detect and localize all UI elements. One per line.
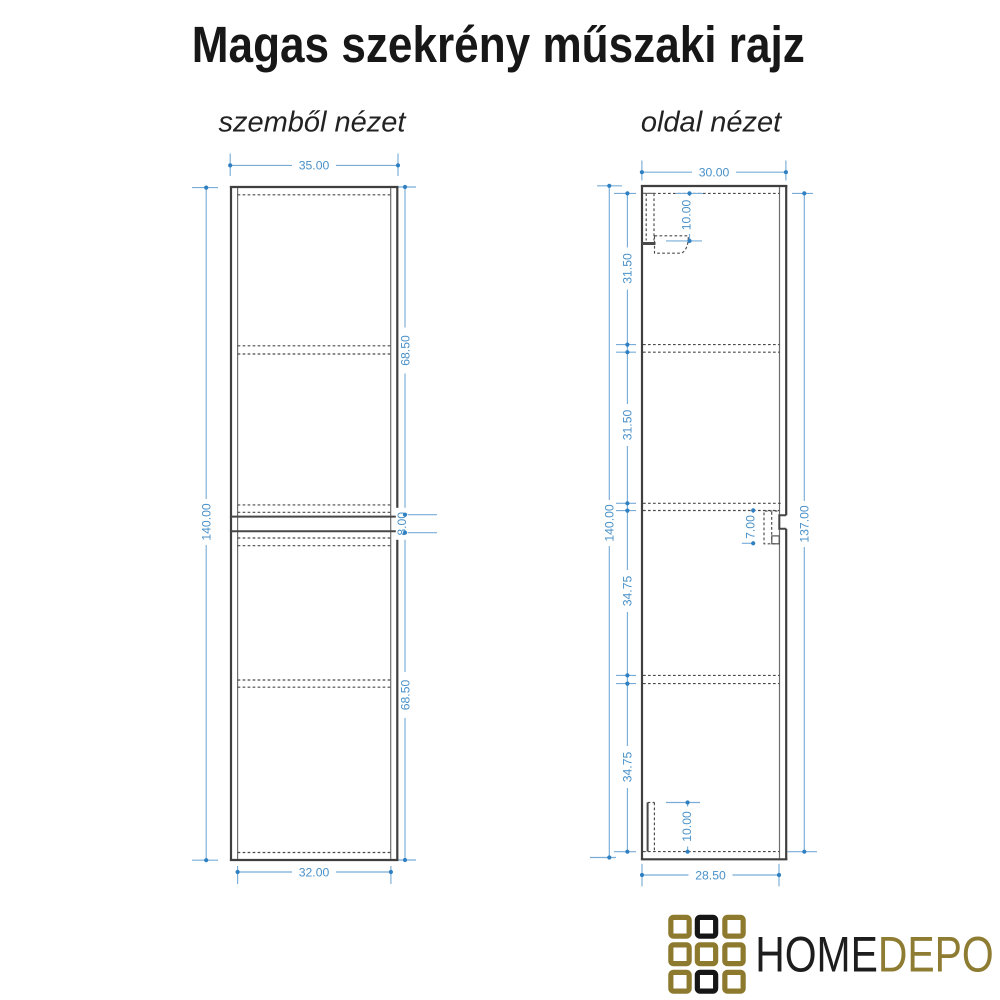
svg-text:31.50: 31.50 xyxy=(621,410,635,441)
svg-text:32.00: 32.00 xyxy=(299,865,330,879)
svg-text:10.00: 10.00 xyxy=(680,811,694,842)
svg-text:31.50: 31.50 xyxy=(621,253,635,284)
svg-text:oldal nézet: oldal nézet xyxy=(641,107,783,139)
svg-text:30.00: 30.00 xyxy=(699,166,730,180)
svg-text:28.50: 28.50 xyxy=(695,868,726,882)
svg-text:68.50: 68.50 xyxy=(398,335,412,366)
svg-text:34.75: 34.75 xyxy=(621,576,635,607)
svg-text:7.00: 7.00 xyxy=(744,515,758,539)
svg-text:szemből nézet: szemből nézet xyxy=(219,107,408,139)
svg-text:34.75: 34.75 xyxy=(621,752,635,783)
svg-text:140.00: 140.00 xyxy=(200,503,214,540)
svg-text:137.00: 137.00 xyxy=(798,505,812,542)
svg-text:10.00: 10.00 xyxy=(679,200,693,231)
svg-text:Magas szekrény műszaki rajz: Magas szekrény műszaki rajz xyxy=(192,16,805,73)
svg-text:HOMEDEPO: HOMEDEPO xyxy=(755,925,994,982)
svg-text:35.00: 35.00 xyxy=(299,159,330,173)
svg-text:140.00: 140.00 xyxy=(603,504,617,541)
svg-text:68.50: 68.50 xyxy=(398,680,412,711)
